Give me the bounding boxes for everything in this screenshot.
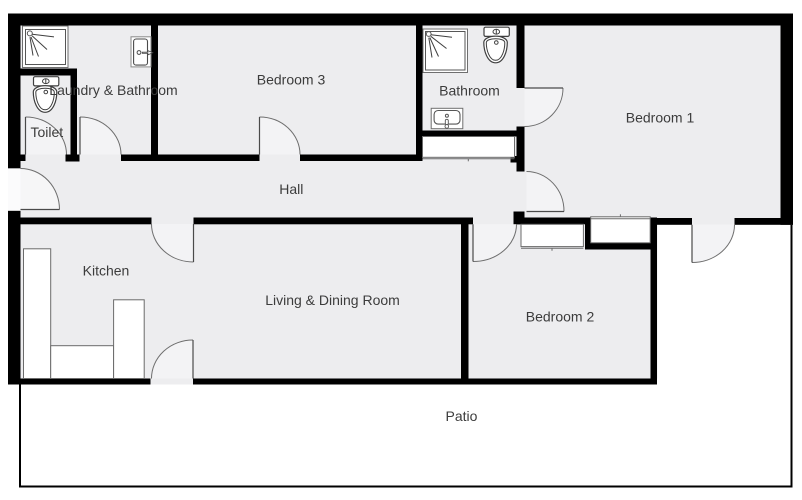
svg-text:Kitchen: Kitchen xyxy=(83,263,130,279)
svg-text:Living & Dining Room: Living & Dining Room xyxy=(265,292,400,308)
svg-text:Bedroom 1: Bedroom 1 xyxy=(626,110,695,126)
svg-text:Patio: Patio xyxy=(446,408,478,424)
svg-text:Laundry & Bathroom: Laundry & Bathroom xyxy=(49,82,177,98)
svg-text:Toilet: Toilet xyxy=(30,124,63,140)
svg-text:Bedroom 2: Bedroom 2 xyxy=(526,309,595,325)
svg-text:Hall: Hall xyxy=(279,181,303,197)
svg-text:Bedroom 3: Bedroom 3 xyxy=(257,72,326,88)
svg-text:Bathroom: Bathroom xyxy=(439,83,500,99)
